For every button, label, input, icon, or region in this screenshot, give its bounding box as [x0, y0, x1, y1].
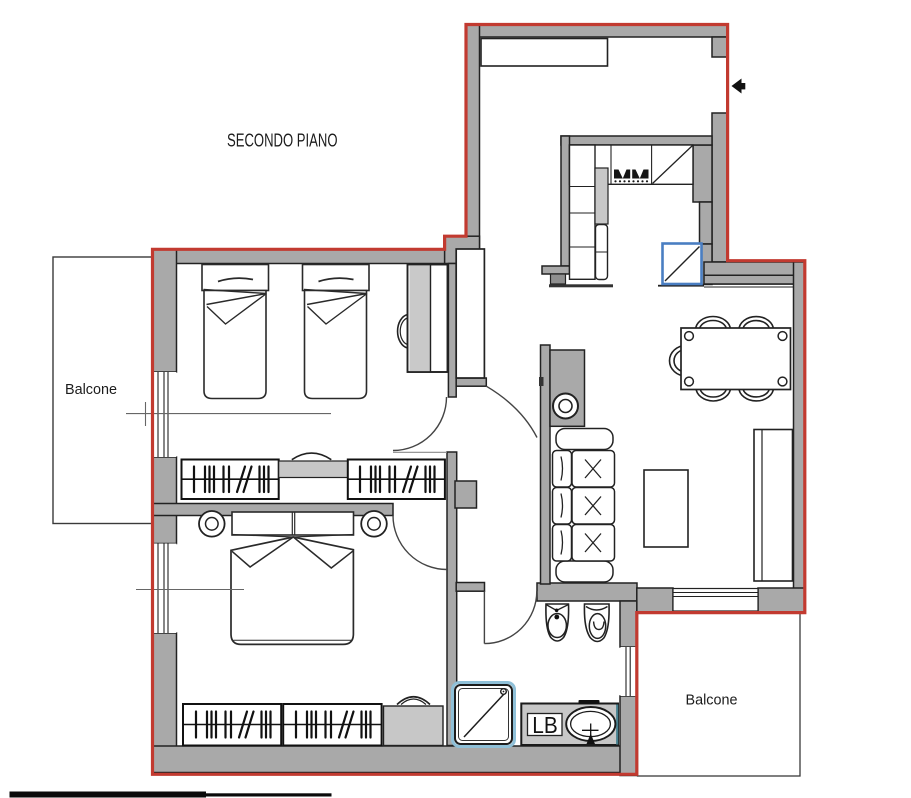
svg-text:LB: LB	[532, 712, 558, 738]
svg-text:Balcone: Balcone	[686, 692, 738, 709]
svg-text:SECONDO PIANO: SECONDO PIANO	[227, 131, 338, 151]
svg-text:Balcone: Balcone	[65, 381, 117, 398]
